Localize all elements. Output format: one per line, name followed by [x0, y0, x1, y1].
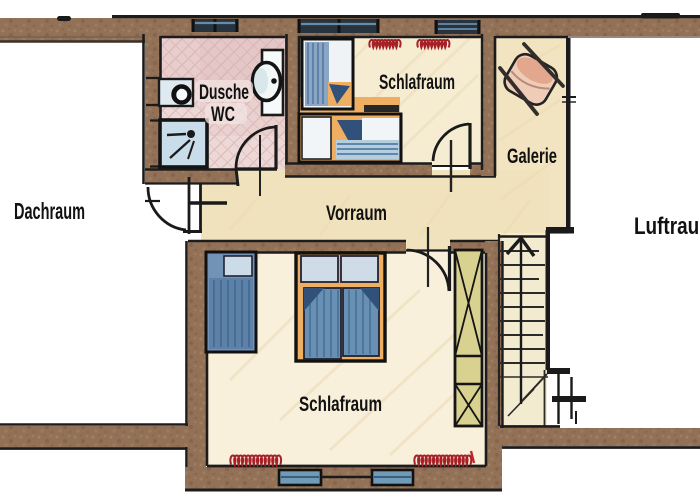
svg-text:Dachraum: Dachraum	[14, 198, 85, 224]
svg-text:Vorraum: Vorraum	[326, 202, 387, 225]
svg-text:Galerie: Galerie	[507, 145, 557, 168]
svg-text:WC: WC	[211, 103, 235, 126]
svg-text:Schlafraum: Schlafraum	[379, 71, 455, 94]
svg-text:Dusche: Dusche	[199, 81, 249, 104]
svg-text:Luftraum: Luftraum	[634, 213, 700, 240]
svg-text:Schlafraum: Schlafraum	[299, 393, 382, 416]
